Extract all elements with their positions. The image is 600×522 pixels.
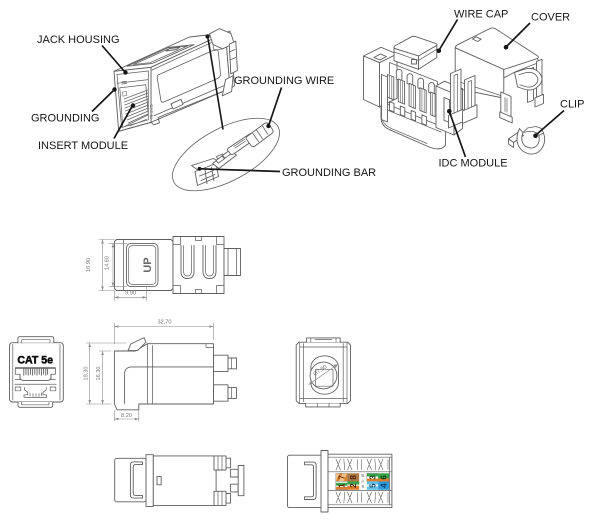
- svg-text:8.20: 8.20: [121, 413, 132, 419]
- svg-text:GROUNDING BAR: GROUNDING BAR: [282, 167, 376, 179]
- svg-text:16.90: 16.90: [86, 258, 92, 272]
- svg-text:5: 5: [368, 483, 377, 488]
- svg-text:GROUNDING WIRE: GROUNDING WIRE: [234, 75, 334, 87]
- svg-text:CLIP: CLIP: [560, 99, 584, 111]
- svg-text:CAT 5e: CAT 5e: [17, 354, 53, 366]
- svg-text:1: 1: [337, 483, 346, 488]
- svg-text:19.30: 19.30: [83, 367, 89, 381]
- svg-text:6: 6: [380, 475, 389, 480]
- svg-text:3: 3: [368, 475, 377, 480]
- svg-text:COVER: COVER: [531, 12, 570, 24]
- svg-text:B: B: [361, 473, 364, 478]
- svg-text:JACK HOUSING: JACK HOUSING: [37, 34, 120, 46]
- svg-text:32.70: 32.70: [158, 320, 172, 326]
- svg-text:WIRE CAP: WIRE CAP: [454, 9, 508, 21]
- svg-text:UP: UP: [142, 257, 154, 272]
- svg-text:14.60: 14.60: [105, 256, 111, 270]
- svg-text:GROUNDING: GROUNDING: [31, 113, 99, 125]
- svg-text:4: 4: [380, 483, 389, 488]
- svg-text:A: A: [361, 479, 364, 484]
- svg-text:7: 7: [337, 475, 346, 480]
- svg-text:8: 8: [349, 475, 358, 480]
- svg-text:2: 2: [349, 483, 358, 488]
- svg-text:CAT 5e: CAT 5e: [149, 104, 154, 120]
- svg-text:9.90: 9.90: [125, 291, 136, 297]
- svg-text:16.30: 16.30: [96, 367, 102, 381]
- svg-text:IDC MODULE: IDC MODULE: [439, 158, 508, 170]
- svg-text:INSERT MODULE: INSERT MODULE: [38, 140, 128, 152]
